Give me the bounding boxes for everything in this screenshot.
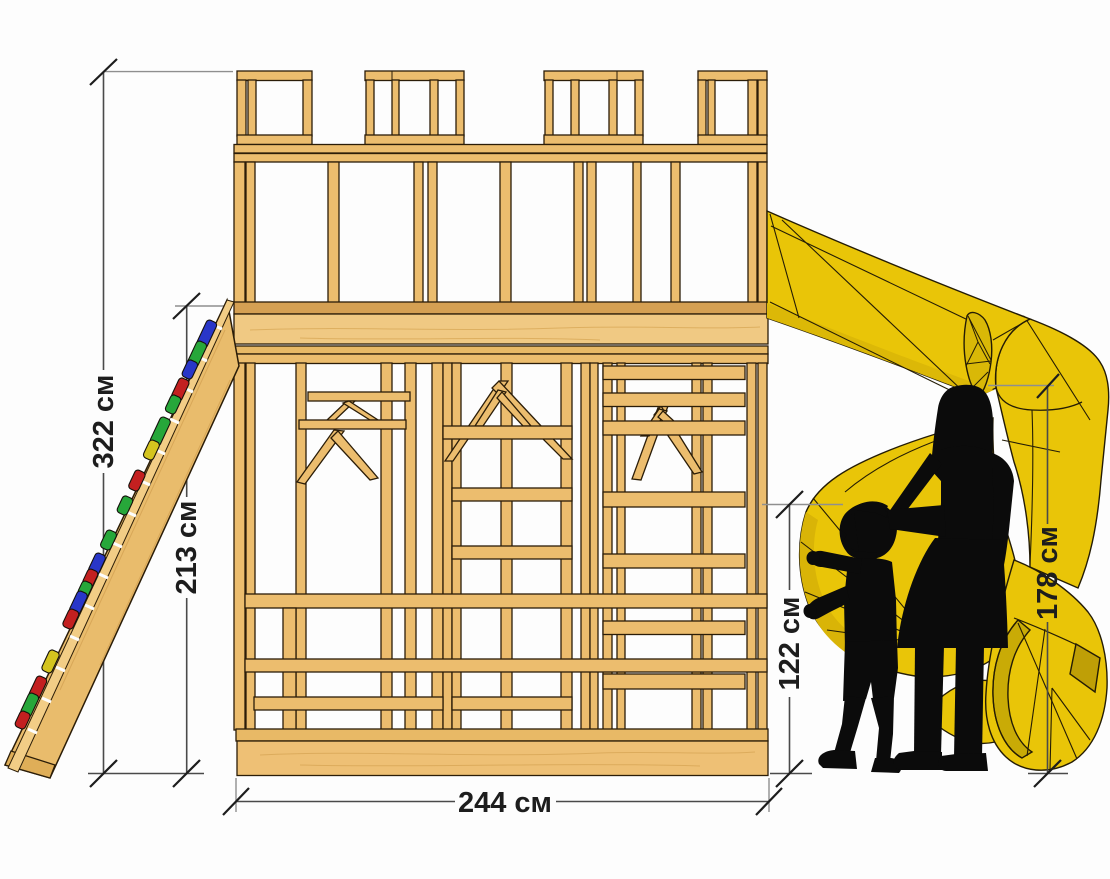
svg-text:322 см: 322 см — [88, 374, 120, 468]
svg-text:213 см: 213 см — [171, 500, 203, 594]
svg-text:244 см: 244 см — [458, 787, 552, 819]
svg-text:178 см: 178 см — [1032, 526, 1064, 620]
svg-text:122 см: 122 см — [774, 596, 806, 690]
